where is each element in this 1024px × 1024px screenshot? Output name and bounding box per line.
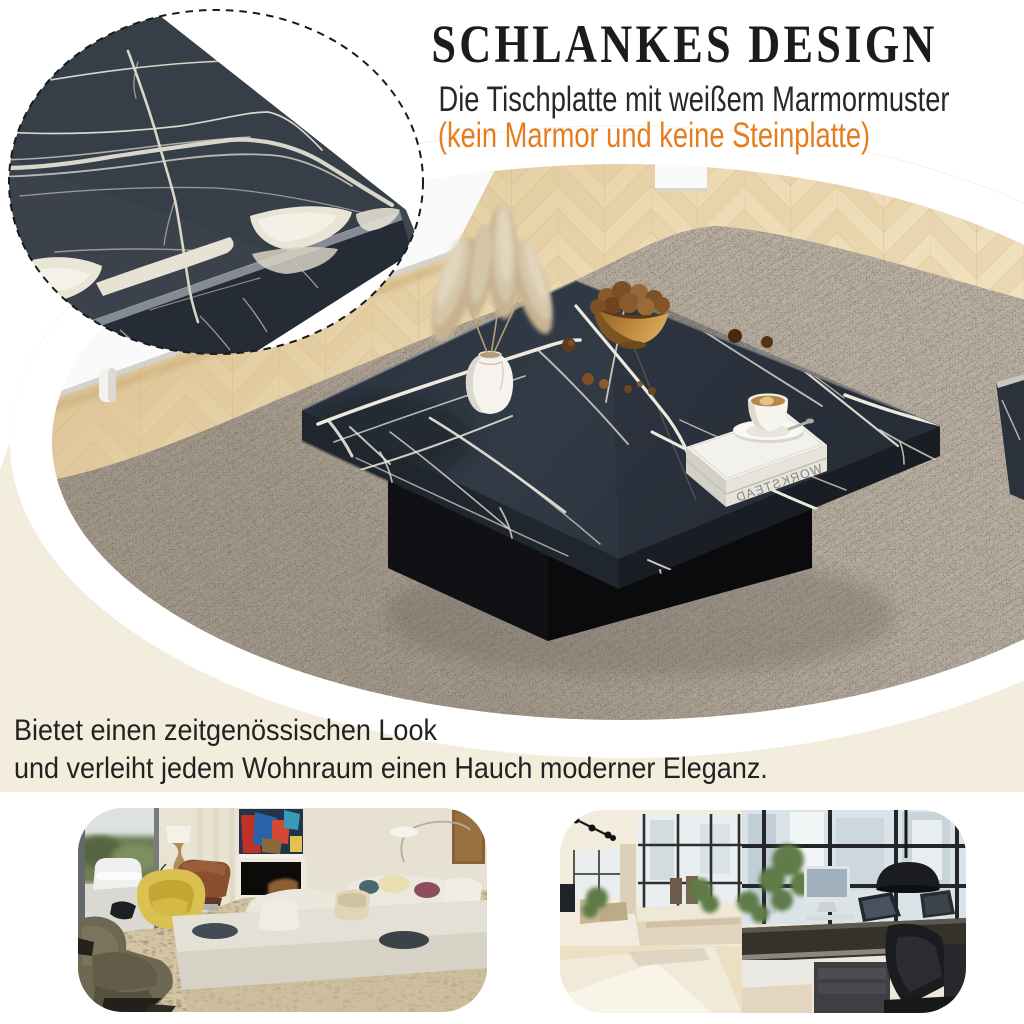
svg-text:und verleiht jedem Wohnraum ei: und verleiht jedem Wohnraum einen Hauch …	[14, 752, 768, 786]
svg-text:(kein Marmor und keine Steinpl: (kein Marmor und keine Steinplatte)	[438, 116, 870, 155]
svg-text:SCHLANKES DESIGN: SCHLANKES DESIGN	[431, 14, 937, 74]
svg-text:Die Tischplatte mit weißem Mar: Die Tischplatte mit weißem Marmormuster	[438, 80, 949, 119]
svg-text:Bietet einen zeitgenössischen: Bietet einen zeitgenössischen Look	[14, 714, 438, 748]
